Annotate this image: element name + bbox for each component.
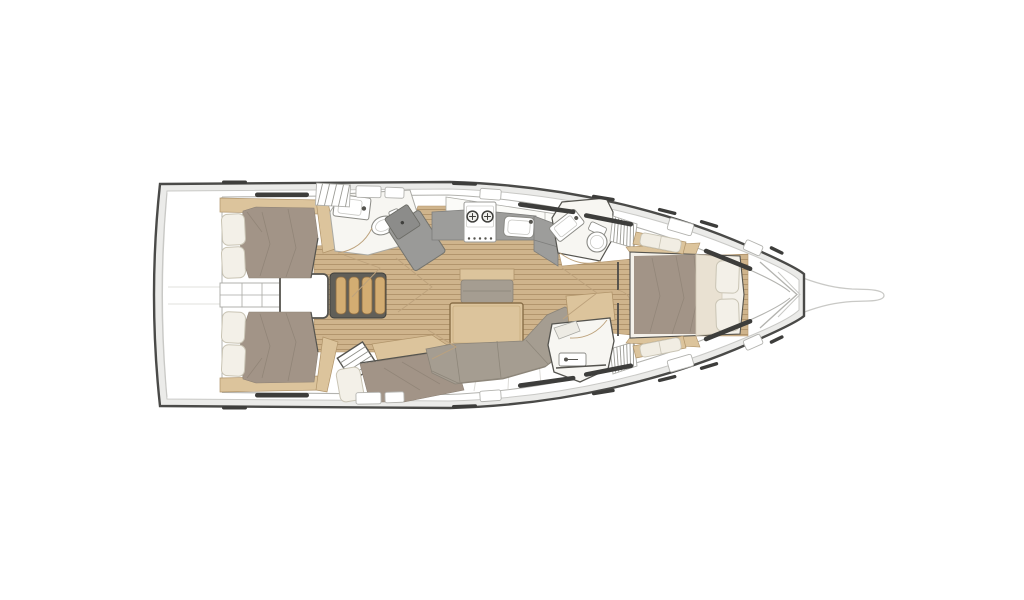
salon-bench-cushion [461,280,513,303]
yacht-floor-plan-page [0,0,1024,600]
companionway-stairs [330,273,386,318]
cockpit-hatch [315,183,350,207]
burner-icon [467,211,478,222]
aft-center-lockers [220,283,280,307]
salon-table [450,303,523,346]
counter-left [432,210,464,240]
engine-compartment [280,274,328,318]
bowsprit [803,278,884,313]
stove-two-burner [464,202,496,242]
berth-pillow [221,213,246,245]
toilet-icon [587,232,607,252]
burner-icon [482,211,493,222]
deck-hatch [385,187,404,198]
toe-rail-mark [769,246,784,256]
berth-pillow [715,261,739,294]
deck-hatch [356,186,381,198]
toe-rail-mark [222,181,247,184]
yacht-floor-plan [0,0,1024,600]
hull-window [255,193,309,198]
salon-bench-back [460,269,514,280]
deck-hatch [480,188,502,200]
berth-pillow [221,246,246,278]
